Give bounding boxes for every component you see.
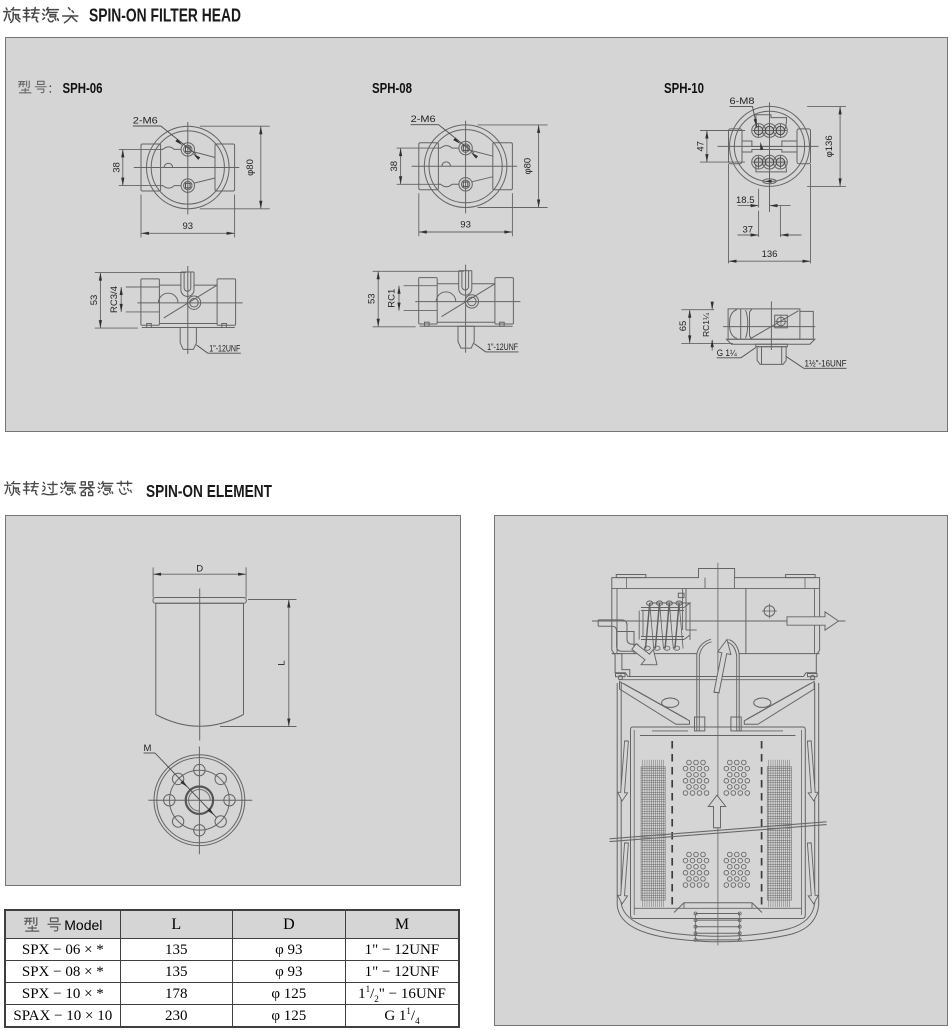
- svg-text:2-M6: 2-M6: [133, 116, 158, 127]
- svg-text:53: 53: [367, 293, 378, 304]
- svg-text:D: D: [196, 563, 203, 574]
- svg-text:RC1¼: RC1¼: [701, 312, 711, 337]
- svg-text:SPH-08: SPH-08: [372, 81, 412, 97]
- svg-text:93: 93: [460, 220, 471, 231]
- svg-text:47: 47: [696, 141, 707, 152]
- svg-text::: :: [49, 81, 53, 96]
- svg-text:φ80: φ80: [523, 158, 534, 175]
- svg-text:M: M: [144, 743, 152, 754]
- svg-text:L: L: [277, 660, 288, 665]
- svg-text:SPH-10: SPH-10: [664, 81, 704, 97]
- svg-text:1"-12UNF: 1"-12UNF: [487, 342, 518, 353]
- svg-text:2-M6: 2-M6: [411, 114, 436, 125]
- svg-text:38: 38: [389, 161, 400, 172]
- svg-text:18.5: 18.5: [736, 195, 755, 206]
- svg-text:SPH-06: SPH-06: [63, 81, 103, 97]
- svg-text:φ136: φ136: [824, 135, 835, 157]
- svg-text:53: 53: [89, 295, 100, 306]
- svg-text:φ80: φ80: [245, 159, 256, 176]
- svg-text:38: 38: [111, 162, 122, 173]
- svg-text:RC1: RC1: [387, 289, 398, 308]
- svg-text:SPIN-ON ELEMENT: SPIN-ON ELEMENT: [146, 481, 272, 501]
- svg-text:136: 136: [762, 249, 778, 260]
- svg-text:RC3/4: RC3/4: [109, 286, 120, 313]
- svg-text:93: 93: [183, 221, 194, 232]
- svg-text:1"-12UNF: 1"-12UNF: [209, 343, 240, 354]
- svg-text:6-M8: 6-M8: [730, 96, 755, 107]
- svg-text:65: 65: [678, 321, 689, 332]
- svg-text:1½"-16UNF: 1½"-16UNF: [805, 359, 847, 370]
- svg-text:37: 37: [743, 224, 754, 235]
